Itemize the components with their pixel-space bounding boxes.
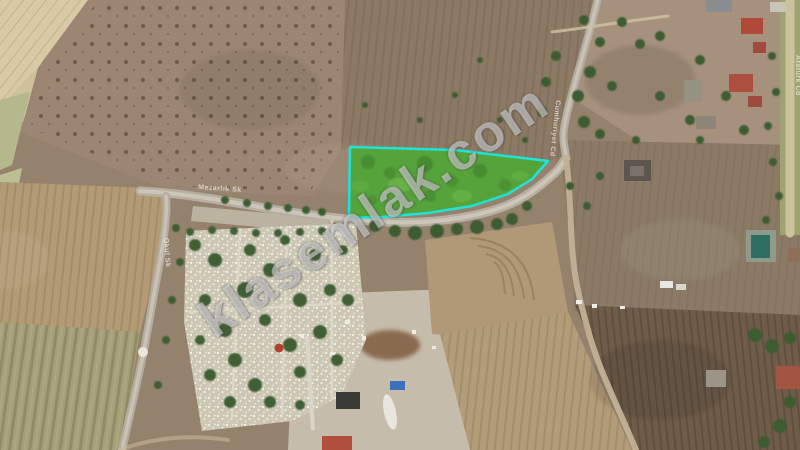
vehicle — [676, 284, 686, 290]
building-red-roof-bottom — [322, 436, 352, 450]
pool — [751, 235, 770, 258]
building-dark-shed — [336, 392, 360, 409]
building — [684, 80, 702, 102]
building-farmhouse-roof — [630, 166, 644, 176]
building — [696, 116, 716, 129]
vehicle — [660, 281, 673, 288]
building — [741, 18, 763, 34]
building — [748, 96, 762, 107]
road-label-east: Atatürk Cd — [794, 55, 800, 96]
field-lowerleft-streaked-texture — [0, 322, 140, 450]
satellite-map-canvas: Mezarlık Sk Okul Sk Cumhuriyet Cd Atatür… — [0, 0, 800, 450]
building-red-roof — [776, 366, 800, 389]
building — [706, 0, 732, 12]
building — [770, 2, 786, 12]
cemetery-gate-kiosk — [347, 230, 355, 236]
road-white-structure — [138, 347, 148, 357]
blue-container — [390, 381, 405, 390]
building — [729, 74, 753, 92]
building — [788, 248, 800, 262]
building-shed — [706, 370, 726, 387]
cemetery-red-dome — [275, 344, 284, 353]
building — [753, 42, 766, 53]
track-cemetery-gate — [330, 221, 332, 236]
satellite-image: Mezarlık Sk Okul Sk Cumhuriyet Cd Atatür… — [0, 0, 800, 450]
